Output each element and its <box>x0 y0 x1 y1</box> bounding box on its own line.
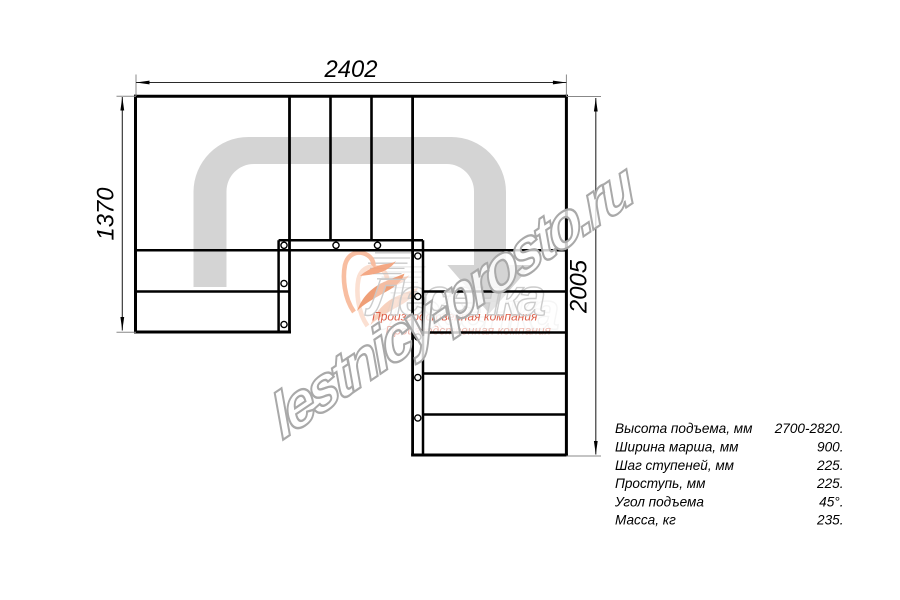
svg-text:1370: 1370 <box>93 187 120 241</box>
svg-text:225.: 225. <box>816 476 843 491</box>
svg-text:Угол подъема: Угол подъема <box>614 494 704 509</box>
svg-text:235.: 235. <box>816 513 843 528</box>
svg-text:Масса, кг: Масса, кг <box>615 513 676 528</box>
svg-text:Ширина марша, мм: Ширина марша, мм <box>615 440 739 455</box>
svg-text:Шаг ступеней, мм: Шаг ступеней, мм <box>615 458 735 473</box>
svg-text:Высота подъема, мм: Высота подъема, мм <box>615 421 753 436</box>
svg-text:2402: 2402 <box>324 56 378 83</box>
svg-text:2005: 2005 <box>566 259 593 314</box>
svg-text:225.: 225. <box>816 458 843 473</box>
svg-text:45°.: 45°. <box>819 494 843 509</box>
svg-text:Проступь, мм: Проступь, мм <box>615 476 706 491</box>
svg-text:2700-2820.: 2700-2820. <box>774 421 844 436</box>
svg-text:900.: 900. <box>817 440 843 455</box>
